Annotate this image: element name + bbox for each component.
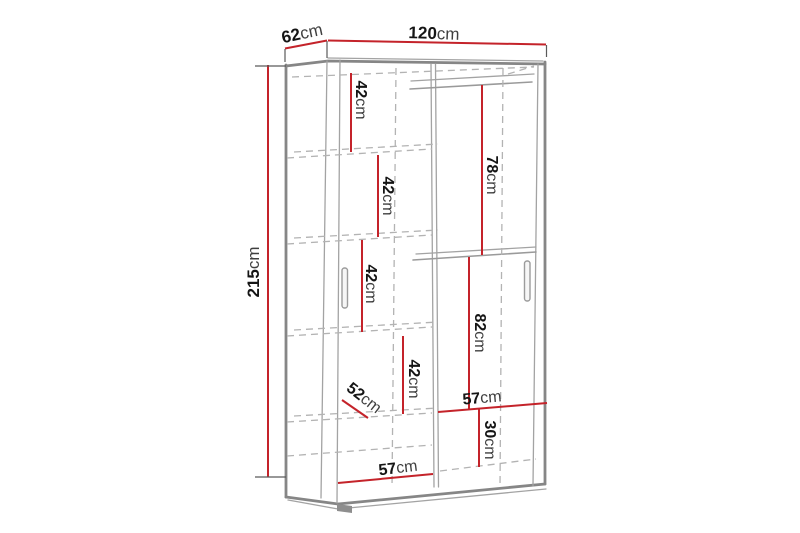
label-height: 215cm [244, 246, 263, 297]
top-shelf-line [411, 74, 534, 81]
label-width: 120cm [408, 23, 460, 44]
diagram-canvas: 62cm 120cm 215cm 42cm 78cm 42cm 42cm 82c… [0, 0, 800, 533]
top-front-edge [286, 61, 545, 66]
divider-hidden-vertical [392, 68, 396, 488]
hanging-rod [410, 82, 532, 89]
label-hanging-lower: 82cm [472, 313, 489, 352]
label-shelf-depth: 52cm [343, 379, 384, 416]
shelf-4-front-dashed [287, 413, 432, 422]
wardrobe-foot [337, 504, 352, 513]
shelf-3-front-dashed [287, 327, 432, 336]
label-compartment-2: 42cm [380, 176, 397, 215]
right-bottom-shelf-dashed [440, 459, 536, 471]
left-front-edge [337, 60, 340, 503]
label-compartment-4: 42cm [406, 359, 423, 398]
label-inner-width-right: 57cm [462, 388, 502, 408]
center-divider-right-line [436, 64, 439, 487]
right-door-handle [525, 261, 531, 301]
shelf-2-front-dashed [287, 235, 432, 244]
shelf-1-back-dashed [294, 144, 438, 152]
label-bottom-section: 30cm [482, 420, 499, 459]
plinth-bottom-line [338, 489, 546, 509]
shelf-5-dashed [287, 445, 432, 456]
label-hanging-upper: 78cm [484, 155, 501, 194]
shelf-3-back-dashed [294, 322, 438, 330]
label-compartment-1: 42cm [353, 80, 370, 119]
left-door-handle [342, 268, 348, 308]
wardrobe-outline [286, 58, 546, 513]
shelf-2-back-dashed [294, 230, 438, 238]
wardrobe-dimension-diagram: 62cm 120cm 215cm 42cm 78cm 42cm 42cm 82c… [0, 0, 800, 533]
shelf-1-front-dashed [287, 149, 432, 158]
right-inner-edge [533, 64, 538, 486]
bottom-front-edge [338, 484, 545, 504]
right-hidden-vertical [500, 68, 503, 487]
label-compartment-3: 42cm [363, 264, 380, 303]
center-divider-left-line [431, 64, 434, 487]
left-inner-back-edge [321, 61, 327, 498]
